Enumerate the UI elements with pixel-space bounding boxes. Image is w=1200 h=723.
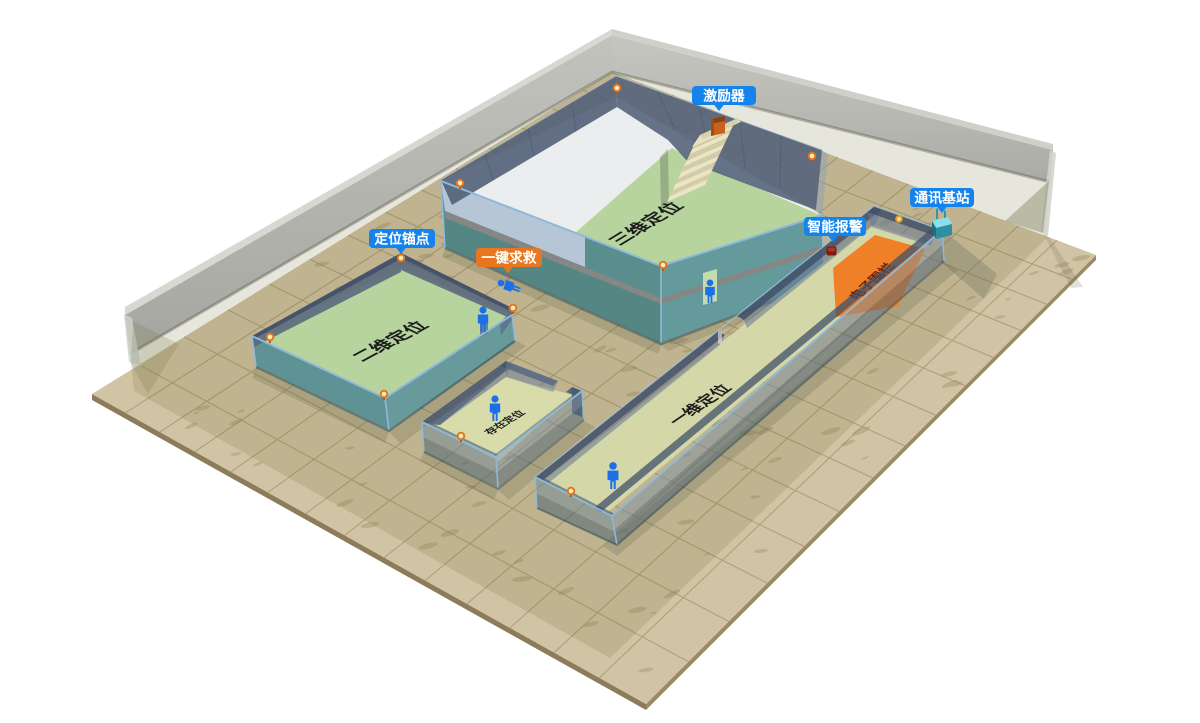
svg-text:通讯基站: 通讯基站: [914, 190, 969, 206]
svg-text:激励器: 激励器: [703, 88, 745, 104]
svg-text:一键求救: 一键求救: [481, 250, 536, 266]
svg-text:定位锚点: 定位锚点: [374, 231, 429, 247]
svg-text:智能报警: 智能报警: [807, 219, 862, 235]
